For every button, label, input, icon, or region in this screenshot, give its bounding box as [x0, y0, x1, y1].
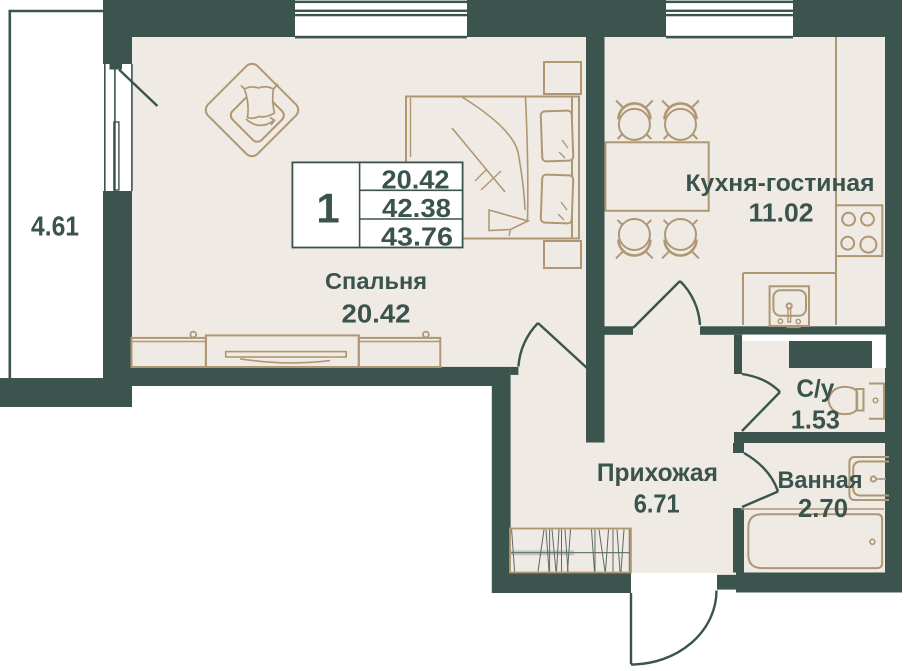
svg-text:Кухня-гостиная: Кухня-гостиная	[686, 170, 875, 197]
svg-text:Ванная: Ванная	[778, 467, 863, 494]
svg-text:2.70: 2.70	[798, 493, 848, 523]
svg-text:20.42: 20.42	[382, 165, 450, 195]
svg-text:6.71: 6.71	[634, 489, 680, 519]
svg-text:Спальня: Спальня	[325, 268, 427, 294]
svg-text:1.53: 1.53	[791, 405, 840, 435]
svg-text:20.42: 20.42	[342, 298, 411, 328]
svg-text:42.38: 42.38	[382, 193, 451, 223]
svg-text:11.02: 11.02	[749, 198, 814, 228]
svg-text:С/у: С/у	[796, 375, 834, 403]
svg-text:4.61: 4.61	[31, 211, 79, 242]
svg-text:Прихожая: Прихожая	[597, 459, 718, 487]
svg-text:43.76: 43.76	[381, 222, 453, 252]
svg-text:1: 1	[316, 184, 339, 231]
